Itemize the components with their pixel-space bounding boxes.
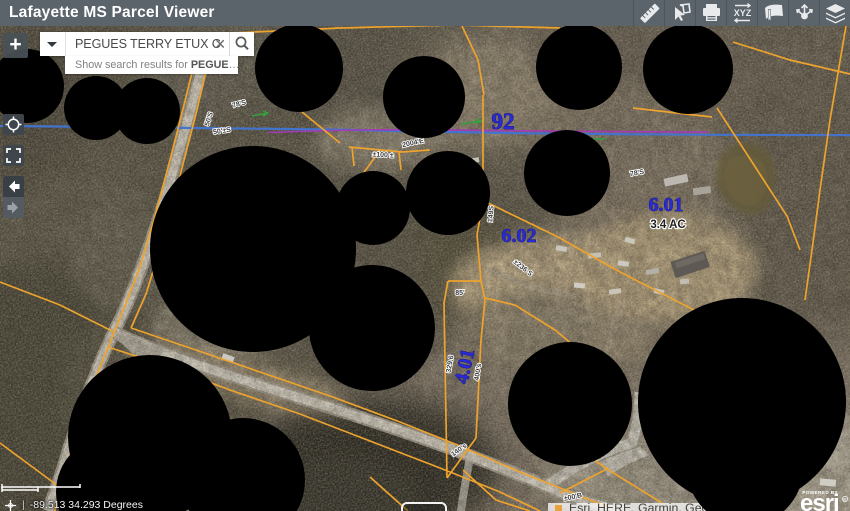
svg-text:149S: 149S: [487, 205, 495, 222]
svg-text:XYZ: XYZ: [734, 8, 752, 18]
svg-text:6.01: 6.01: [649, 194, 684, 216]
svg-text:92: 92: [492, 109, 515, 134]
svg-text:esri: esri: [801, 490, 839, 511]
svg-text:6.02: 6.02: [502, 225, 537, 247]
svg-text:85': 85': [455, 290, 465, 297]
svg-text:±100 ±: ±100 ±: [372, 151, 394, 159]
svg-text:3.4 AC: 3.4 AC: [650, 219, 685, 231]
